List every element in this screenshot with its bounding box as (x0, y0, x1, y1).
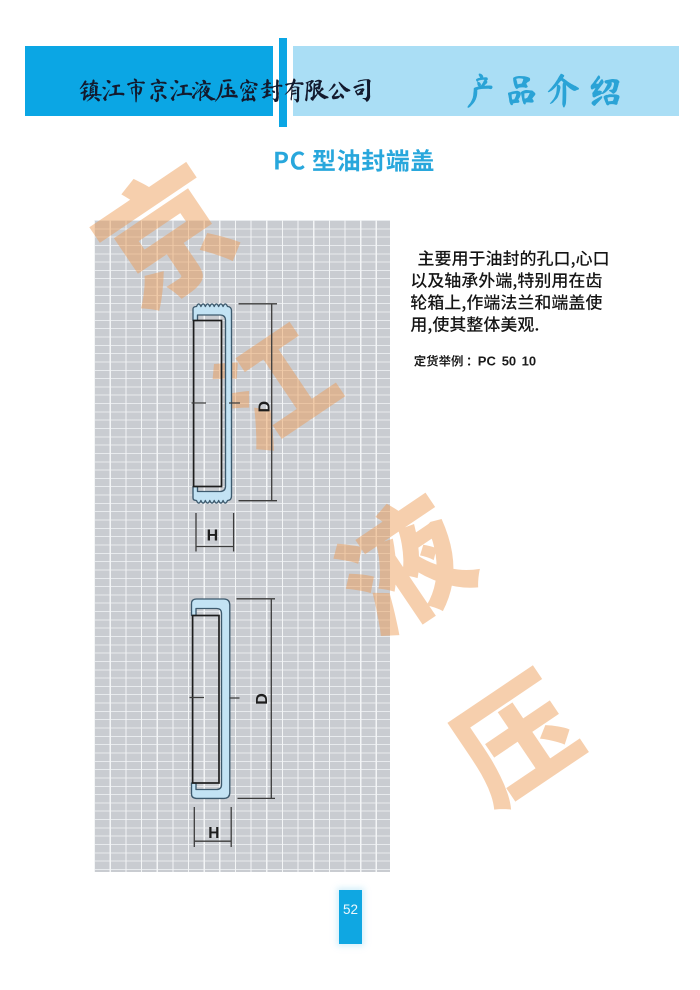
svg-text:H: H (208, 825, 219, 842)
svg-text:D: D (256, 401, 273, 413)
svg-text:H: H (207, 527, 219, 544)
svg-text:PC5010: PC5010 (478, 353, 536, 368)
svg-text:D: D (254, 693, 271, 705)
